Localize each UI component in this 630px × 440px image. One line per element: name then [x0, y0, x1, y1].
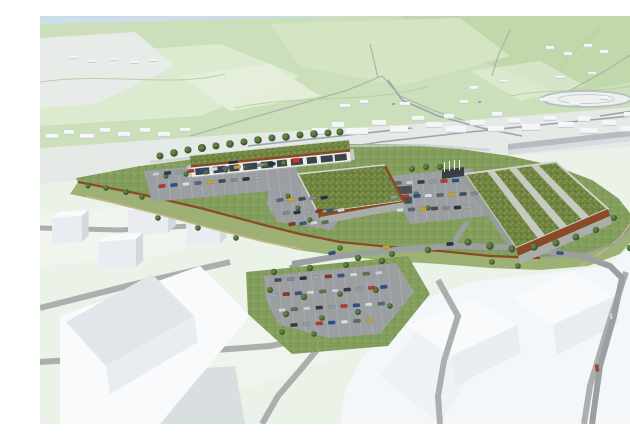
car: [328, 321, 335, 325]
town-building-shadow: [600, 53, 608, 54]
car: [303, 322, 310, 326]
tree: [379, 258, 385, 264]
car: [365, 302, 372, 306]
town-building-shadow: [492, 116, 502, 117]
town-building-shadow: [564, 55, 572, 56]
town-building-shadow: [546, 49, 554, 50]
car: [257, 163, 264, 167]
tree: [198, 144, 206, 152]
car: [230, 178, 237, 182]
tree: [213, 143, 220, 150]
car: [164, 171, 171, 175]
car: [406, 181, 413, 185]
car: [325, 274, 332, 278]
tree: [254, 136, 262, 144]
town-building-shadow: [570, 105, 580, 106]
car: [340, 304, 347, 308]
tree: [283, 311, 289, 317]
architectural-rendering: Aerial 3D architectural visualisation of…: [40, 16, 630, 424]
water-speck: [478, 101, 481, 103]
car: [452, 179, 459, 183]
town-building-shadow: [446, 132, 466, 133]
tree: [281, 160, 286, 165]
car: [210, 167, 217, 171]
tree: [425, 247, 431, 253]
rendering-canvas: Aerial 3D architectural visualisation of…: [40, 16, 630, 424]
car: [436, 193, 443, 197]
town-building-shadow: [88, 62, 96, 63]
tree: [233, 235, 239, 241]
tree: [437, 164, 443, 170]
car: [187, 169, 194, 173]
town-building-shadow: [332, 127, 344, 128]
massing-block: [52, 210, 89, 244]
tree: [593, 227, 599, 233]
tree: [311, 331, 317, 337]
car: [152, 172, 159, 176]
car: [413, 194, 420, 198]
town-building-shadow: [558, 127, 574, 128]
tree: [310, 130, 318, 138]
car: [396, 208, 403, 212]
tree: [552, 239, 559, 246]
car: [316, 306, 323, 310]
town-building-shadow: [46, 138, 58, 139]
car: [454, 206, 461, 210]
town-building-shadow: [470, 89, 478, 90]
car: [199, 168, 206, 172]
tree: [279, 329, 285, 335]
tree: [325, 130, 332, 137]
town-building-shadow: [578, 121, 590, 122]
tree: [269, 135, 276, 142]
car: [394, 181, 401, 185]
car: [222, 166, 229, 170]
tree: [241, 139, 248, 146]
racetrack-oval: [541, 91, 630, 107]
car: [270, 293, 277, 297]
car: [378, 302, 385, 306]
tree: [226, 140, 234, 148]
town-building-shadow: [488, 131, 504, 132]
car: [206, 180, 213, 184]
car: [287, 277, 294, 281]
town-building-shadow: [340, 107, 350, 108]
town-building-shadow: [158, 136, 170, 137]
car: [312, 275, 319, 279]
car: [307, 290, 314, 294]
town-building-shadow: [400, 105, 410, 106]
car: [245, 164, 252, 168]
tree: [103, 185, 109, 191]
tree: [489, 259, 495, 265]
tree: [319, 315, 325, 321]
tree: [170, 149, 178, 157]
tree: [139, 194, 145, 200]
car: [242, 177, 249, 181]
car: [417, 180, 424, 184]
tree: [611, 215, 617, 221]
town-building-shadow: [360, 103, 368, 104]
tree: [307, 265, 313, 271]
tree: [573, 234, 580, 241]
car: [471, 192, 478, 196]
tree: [486, 242, 494, 250]
town-building-shadow: [544, 120, 556, 121]
car: [408, 208, 415, 212]
town-building-shadow: [602, 125, 616, 126]
car: [234, 165, 241, 169]
town-building-shadow: [556, 78, 564, 79]
tree: [123, 189, 129, 195]
car: [375, 271, 382, 275]
car: [446, 242, 453, 246]
car: [431, 207, 438, 211]
car: [182, 182, 189, 186]
town-building-shadow: [470, 125, 484, 126]
tree: [515, 263, 521, 269]
town-building-shadow: [588, 74, 596, 75]
town-building-shadow: [508, 123, 520, 124]
car: [300, 276, 307, 280]
car: [337, 274, 344, 278]
car: [402, 195, 409, 199]
town-building-shadow: [522, 130, 540, 131]
town-building-shadow: [460, 103, 468, 104]
town-building-shadow: [600, 99, 608, 100]
car: [290, 323, 297, 327]
tree: [530, 243, 538, 251]
tree: [195, 225, 201, 231]
tree: [86, 184, 91, 189]
town-building-shadow: [580, 133, 598, 134]
town-building-shadow: [426, 127, 442, 128]
town-building-shadow: [80, 138, 94, 139]
car: [366, 318, 373, 322]
car: [353, 303, 360, 307]
town-building-shadow: [110, 60, 118, 61]
tree: [508, 245, 515, 252]
car: [429, 180, 436, 184]
town-building-shadow: [444, 118, 454, 119]
town-building-shadow: [412, 120, 424, 121]
car: [442, 206, 449, 210]
car: [319, 289, 326, 293]
car: [218, 179, 225, 183]
car: [170, 183, 177, 187]
tree: [155, 215, 161, 221]
car: [295, 291, 302, 295]
car: [380, 285, 387, 289]
tree: [295, 205, 300, 210]
car: [176, 170, 183, 174]
tree: [423, 164, 429, 170]
car: [283, 292, 290, 296]
town-building-shadow: [500, 82, 508, 83]
tree: [464, 238, 471, 245]
car: [316, 322, 323, 326]
town-building-shadow: [372, 125, 386, 126]
tree: [185, 147, 192, 154]
town-building-shadow: [70, 58, 78, 59]
car: [353, 319, 360, 323]
town-building-shadow: [118, 136, 130, 137]
car: [448, 193, 455, 197]
tree: [337, 245, 343, 251]
car: [303, 306, 310, 310]
tree: [271, 269, 277, 275]
town-building-shadow: [624, 116, 630, 117]
car: [356, 287, 363, 291]
water-speck: [392, 103, 395, 105]
town-building-shadow: [150, 61, 158, 62]
town-building-shadow: [140, 132, 150, 133]
car: [368, 286, 375, 290]
car: [425, 194, 432, 198]
tree: [157, 153, 164, 160]
car: [440, 179, 447, 183]
town-building-shadow: [584, 47, 592, 48]
tree: [282, 133, 290, 141]
town-building-shadow: [64, 134, 74, 135]
tree: [337, 129, 344, 136]
car: [459, 192, 466, 196]
car: [291, 307, 298, 311]
car: [194, 181, 201, 185]
car: [350, 273, 357, 277]
tree: [387, 303, 393, 309]
tree: [355, 255, 361, 261]
car: [419, 207, 426, 211]
tree: [355, 309, 361, 315]
tree: [409, 166, 415, 172]
tree: [301, 294, 307, 300]
town-building-shadow: [346, 134, 368, 135]
town-building-shadow: [180, 131, 190, 132]
building-a-sign-red: [293, 158, 300, 163]
tree: [297, 132, 304, 139]
town-building-shadow: [390, 132, 408, 133]
town-building-shadow: [620, 131, 630, 132]
massing-block: [98, 232, 143, 270]
car: [556, 251, 563, 255]
car: [268, 162, 275, 166]
tree: [389, 251, 395, 257]
car: [465, 205, 472, 209]
car: [278, 308, 285, 312]
tree: [263, 162, 268, 167]
tree: [343, 262, 349, 268]
car: [158, 184, 165, 188]
town-building-shadow: [540, 101, 548, 102]
car: [274, 278, 281, 282]
car: [344, 288, 351, 292]
town-building-shadow: [130, 63, 138, 64]
tree: [267, 287, 273, 293]
car: [390, 195, 397, 199]
car: [341, 320, 348, 324]
car: [363, 272, 370, 276]
car: [328, 305, 335, 309]
town-building-shadow: [100, 132, 110, 133]
car: [331, 289, 338, 293]
car: [254, 176, 261, 180]
